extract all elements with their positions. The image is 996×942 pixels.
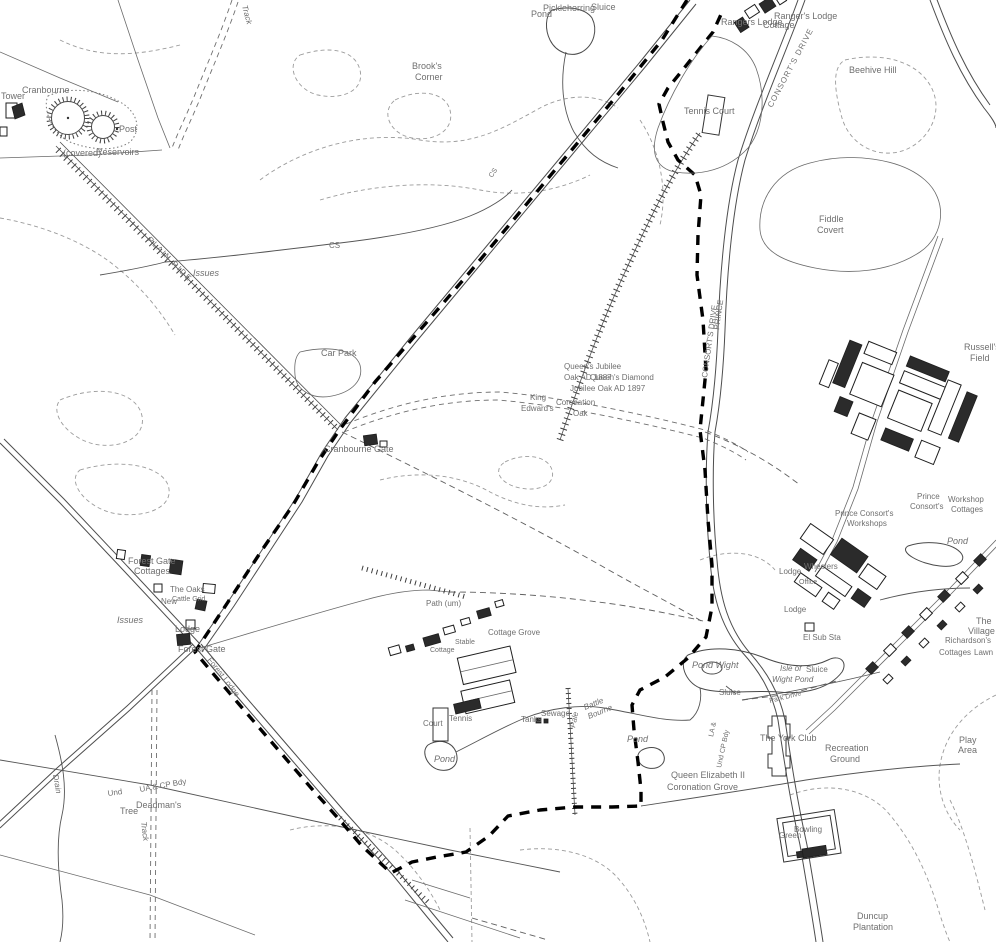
map-label: Covert [817, 225, 844, 235]
map-label: Issues [193, 268, 220, 278]
map-label: Pond [531, 9, 552, 19]
map-label: Pond [434, 754, 456, 764]
map-label: Corner [415, 72, 443, 82]
fiddle-covert-outline [760, 158, 941, 272]
map-labels: TowerCranbournePost(covered)ReservoirsPL… [1, 2, 996, 932]
map-label: The [976, 616, 992, 626]
map-label: Deadman's [136, 800, 182, 810]
map-label: Sluice [719, 688, 741, 697]
map-label: El Sub Sta [803, 633, 841, 642]
map-label: Jubilee Oak AD 1897 [570, 384, 646, 393]
map-label: Tennis [449, 714, 472, 723]
map-label: New [161, 597, 177, 606]
map-label: Russell's [964, 342, 996, 352]
map-label: Forest Gate [128, 556, 176, 566]
map-label: Play [959, 735, 977, 745]
workshops-cluster [807, 328, 982, 472]
map-label: Brook's [412, 61, 442, 71]
map-label: Fiddle [819, 214, 844, 224]
map-label: Beehive Hill [849, 65, 897, 75]
map-label: Pond Wight [692, 660, 739, 670]
map-label: Drain [51, 774, 63, 795]
map-label: Workshops [847, 519, 887, 528]
map-label: Duncup [857, 911, 888, 921]
map-label: Queen's Jubilee [564, 362, 622, 371]
map-label: LA & [708, 721, 718, 737]
map-label: Consort's [910, 502, 944, 511]
map-viewport: TowerCranbournePost(covered)ReservoirsPL… [0, 0, 996, 942]
map-label: Pond [627, 734, 649, 744]
map-label: Green [779, 831, 801, 840]
map-label: Wight Pond [772, 675, 814, 684]
map-label: CS [488, 167, 500, 179]
map-label: Cranbourne [22, 85, 70, 95]
pickleherring-pond [546, 8, 594, 54]
map-label: Cottage Grove [488, 628, 541, 637]
map-label: Stable [455, 639, 475, 646]
map-label: Sluice [591, 2, 616, 12]
map-label: Car Park [321, 348, 357, 358]
map-label: Office [799, 579, 817, 586]
map-label: Edward's [521, 404, 554, 413]
map-label: Cottage [763, 20, 795, 30]
map-label: CS [329, 241, 340, 250]
map-label: Track [139, 821, 150, 842]
tracks-and-paths [150, 0, 840, 942]
map-label: Issues [117, 615, 144, 625]
map-label: Prince [917, 492, 940, 501]
map-label: Sluice [806, 665, 828, 674]
map-label: Recreation [825, 743, 869, 753]
map-label: Tanks [521, 715, 542, 724]
map-label: Plantation [853, 922, 893, 932]
map-label: Court [423, 719, 443, 728]
map-label: King [530, 393, 546, 402]
post-marker [116, 128, 118, 130]
map-label: Post [119, 124, 138, 134]
map-label: Coronation [556, 398, 595, 407]
map-label: Reservoirs [96, 147, 140, 157]
map-label: Und [107, 787, 123, 798]
map-label: Und CP Bdy [716, 729, 731, 768]
map-label: Wheelers [804, 562, 838, 571]
el-sub-sta [805, 623, 814, 631]
map-label: Lodge [784, 605, 807, 614]
map-label: Prince Consort's [835, 509, 893, 518]
map-label: Queen's Diamond [590, 373, 654, 382]
map-label: Isle of [780, 664, 802, 673]
buildings [116, 0, 986, 862]
map-label: Lawn [974, 648, 993, 657]
map-label: Sewage [541, 709, 570, 718]
map-label: Ground [830, 754, 860, 764]
map-label: Forest Gate [178, 644, 226, 654]
pond [638, 748, 665, 769]
map-label: Field [970, 353, 990, 363]
map-label: Queen Elizabeth II [671, 770, 745, 780]
map-label: Track [240, 4, 254, 26]
map-label: The Oaks [170, 585, 205, 594]
pond [906, 543, 963, 567]
map-label: Tree [120, 806, 138, 816]
map-label: Path (um) [426, 599, 461, 608]
map-label: Cottage [430, 647, 455, 654]
map-label: Cranbourne Gate [324, 444, 394, 454]
map-label: PLAIN RIDE [146, 235, 194, 283]
glasshouses [444, 646, 523, 716]
map-label: Cattle Grid [172, 596, 206, 603]
map-label: Tennis Court [684, 106, 735, 116]
map-label: Lodge [779, 567, 802, 576]
map-label: Village [968, 626, 995, 636]
map-label: Oak [573, 409, 589, 418]
map-label: Lodge [175, 624, 200, 634]
map-label: Cottages [939, 648, 971, 657]
map-label: Coronation Grove [667, 782, 738, 792]
map-label: Workshop [948, 495, 984, 504]
map-label: The York Club [760, 733, 817, 743]
village-cottages [866, 554, 987, 684]
map-label: Cottages [951, 505, 983, 514]
map-label: Pond [947, 536, 969, 546]
map-canvas: TowerCranbournePost(covered)ReservoirsPL… [0, 0, 996, 942]
map-label: Forest Lodge [205, 656, 241, 699]
map-label: Cottages [134, 566, 171, 576]
map-label: Richardson's [945, 636, 991, 645]
map-label: Area [958, 745, 977, 755]
